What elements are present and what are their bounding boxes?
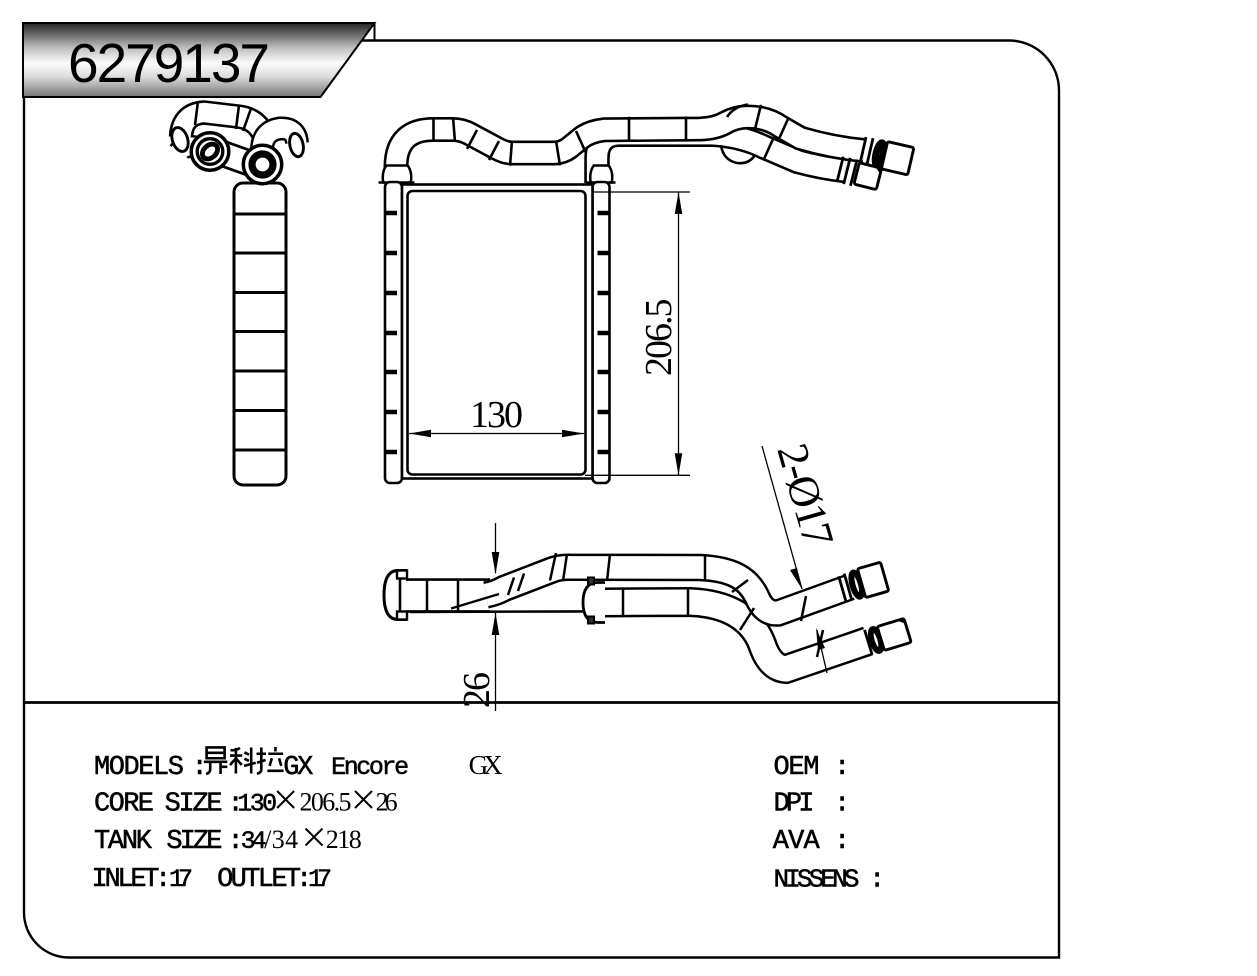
svg-text:Encore: Encore bbox=[331, 753, 409, 782]
svg-text:DPI: DPI bbox=[774, 790, 815, 820]
svg-text::: : bbox=[192, 753, 208, 783]
svg-text:130: 130 bbox=[470, 394, 522, 436]
svg-text:26: 26 bbox=[456, 673, 498, 708]
svg-text:26: 26 bbox=[376, 788, 398, 817]
svg-text:218: 218 bbox=[326, 825, 362, 854]
svg-text:SIZE: SIZE bbox=[166, 827, 222, 857]
svg-text:6279137: 6279137 bbox=[68, 32, 270, 94]
svg-text:SIZE: SIZE bbox=[165, 790, 223, 820]
svg-text::: : bbox=[834, 827, 850, 857]
svg-text:130: 130 bbox=[237, 790, 277, 819]
svg-text:OUTLET: OUTLET bbox=[217, 865, 301, 895]
svg-text:17: 17 bbox=[308, 865, 332, 894]
svg-text:206.5: 206.5 bbox=[300, 788, 352, 817]
svg-text:OEM: OEM bbox=[774, 753, 820, 783]
svg-text:206.5: 206.5 bbox=[638, 300, 680, 377]
svg-text::: : bbox=[834, 753, 850, 783]
svg-text::: : bbox=[869, 866, 885, 896]
svg-text:/34: /34 bbox=[264, 825, 298, 854]
svg-text:INLET: INLET bbox=[92, 865, 160, 895]
svg-text:GX: GX bbox=[283, 753, 313, 783]
svg-text:CORE: CORE bbox=[94, 790, 154, 820]
svg-text:17: 17 bbox=[169, 865, 193, 894]
svg-text:AVA: AVA bbox=[773, 827, 821, 857]
svg-text:GX: GX bbox=[469, 750, 504, 780]
svg-text:34: 34 bbox=[241, 827, 267, 856]
svg-text:NISSENS: NISSENS bbox=[774, 865, 860, 895]
svg-text::: : bbox=[834, 790, 850, 820]
svg-text:2-Ø17: 2-Ø17 bbox=[767, 438, 843, 551]
svg-text:TANK: TANK bbox=[94, 827, 153, 857]
svg-text:MODELS: MODELS bbox=[94, 753, 184, 783]
